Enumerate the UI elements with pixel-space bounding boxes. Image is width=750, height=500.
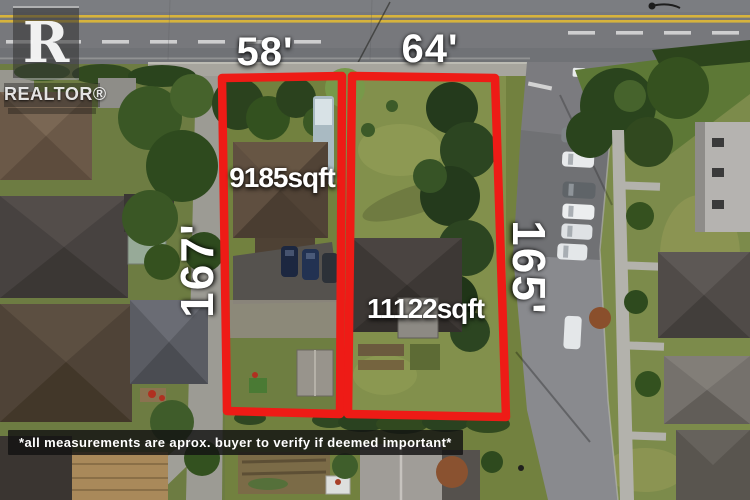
rust-tree [436, 456, 468, 488]
house-left-2 [0, 196, 128, 298]
parked-car [563, 316, 582, 350]
tree [635, 371, 661, 397]
shed-detail [335, 479, 341, 485]
house-right-2 [658, 252, 750, 338]
listing-aerial-image: 58' 64' 167' 165' 9185sqft 11122sqft *al… [0, 0, 750, 500]
playhouse-roof [252, 372, 258, 378]
aerial-photo [0, 0, 750, 500]
realtor-watermark: R REALTOR® [10, 6, 90, 114]
parked-car [561, 223, 593, 240]
parked-car [557, 243, 588, 261]
lot2-depth-label: 165' [502, 220, 556, 316]
bush [361, 123, 375, 137]
realtor-logo-icon: R [13, 6, 79, 80]
rust-shrub [589, 307, 611, 329]
realtor-brand-text: REALTOR® [4, 83, 100, 107]
house-right-4 [676, 430, 750, 500]
lot1-house [233, 142, 328, 254]
tree [332, 453, 358, 479]
bush [386, 100, 398, 112]
bottom-garden [238, 452, 330, 494]
lot2-area-label: 11122sqft [348, 293, 503, 325]
lot1-shed [297, 350, 333, 396]
lot1-area-label: 9185sqft [212, 162, 352, 194]
pedestrian [518, 465, 524, 471]
tree [481, 451, 503, 473]
tree [624, 290, 648, 314]
house-right-3 [664, 356, 750, 424]
realtor-logo-letter: R [23, 15, 70, 71]
play-structure [148, 390, 156, 398]
realtor-logo-strip [8, 108, 96, 114]
measurements-disclaimer: *all measurements are aprox. buyer to ve… [8, 430, 463, 455]
lot1-depth-label: 167' [170, 222, 224, 318]
playhouse [249, 378, 267, 393]
parked-car [562, 203, 595, 220]
parked-car [562, 181, 596, 199]
tree [626, 202, 654, 230]
house-left-3 [0, 304, 132, 422]
lot2-width-label: 64' [365, 27, 495, 72]
play-structure [159, 395, 165, 401]
house-right-1 [695, 122, 750, 232]
lot1-width-label: 58' [200, 30, 330, 75]
